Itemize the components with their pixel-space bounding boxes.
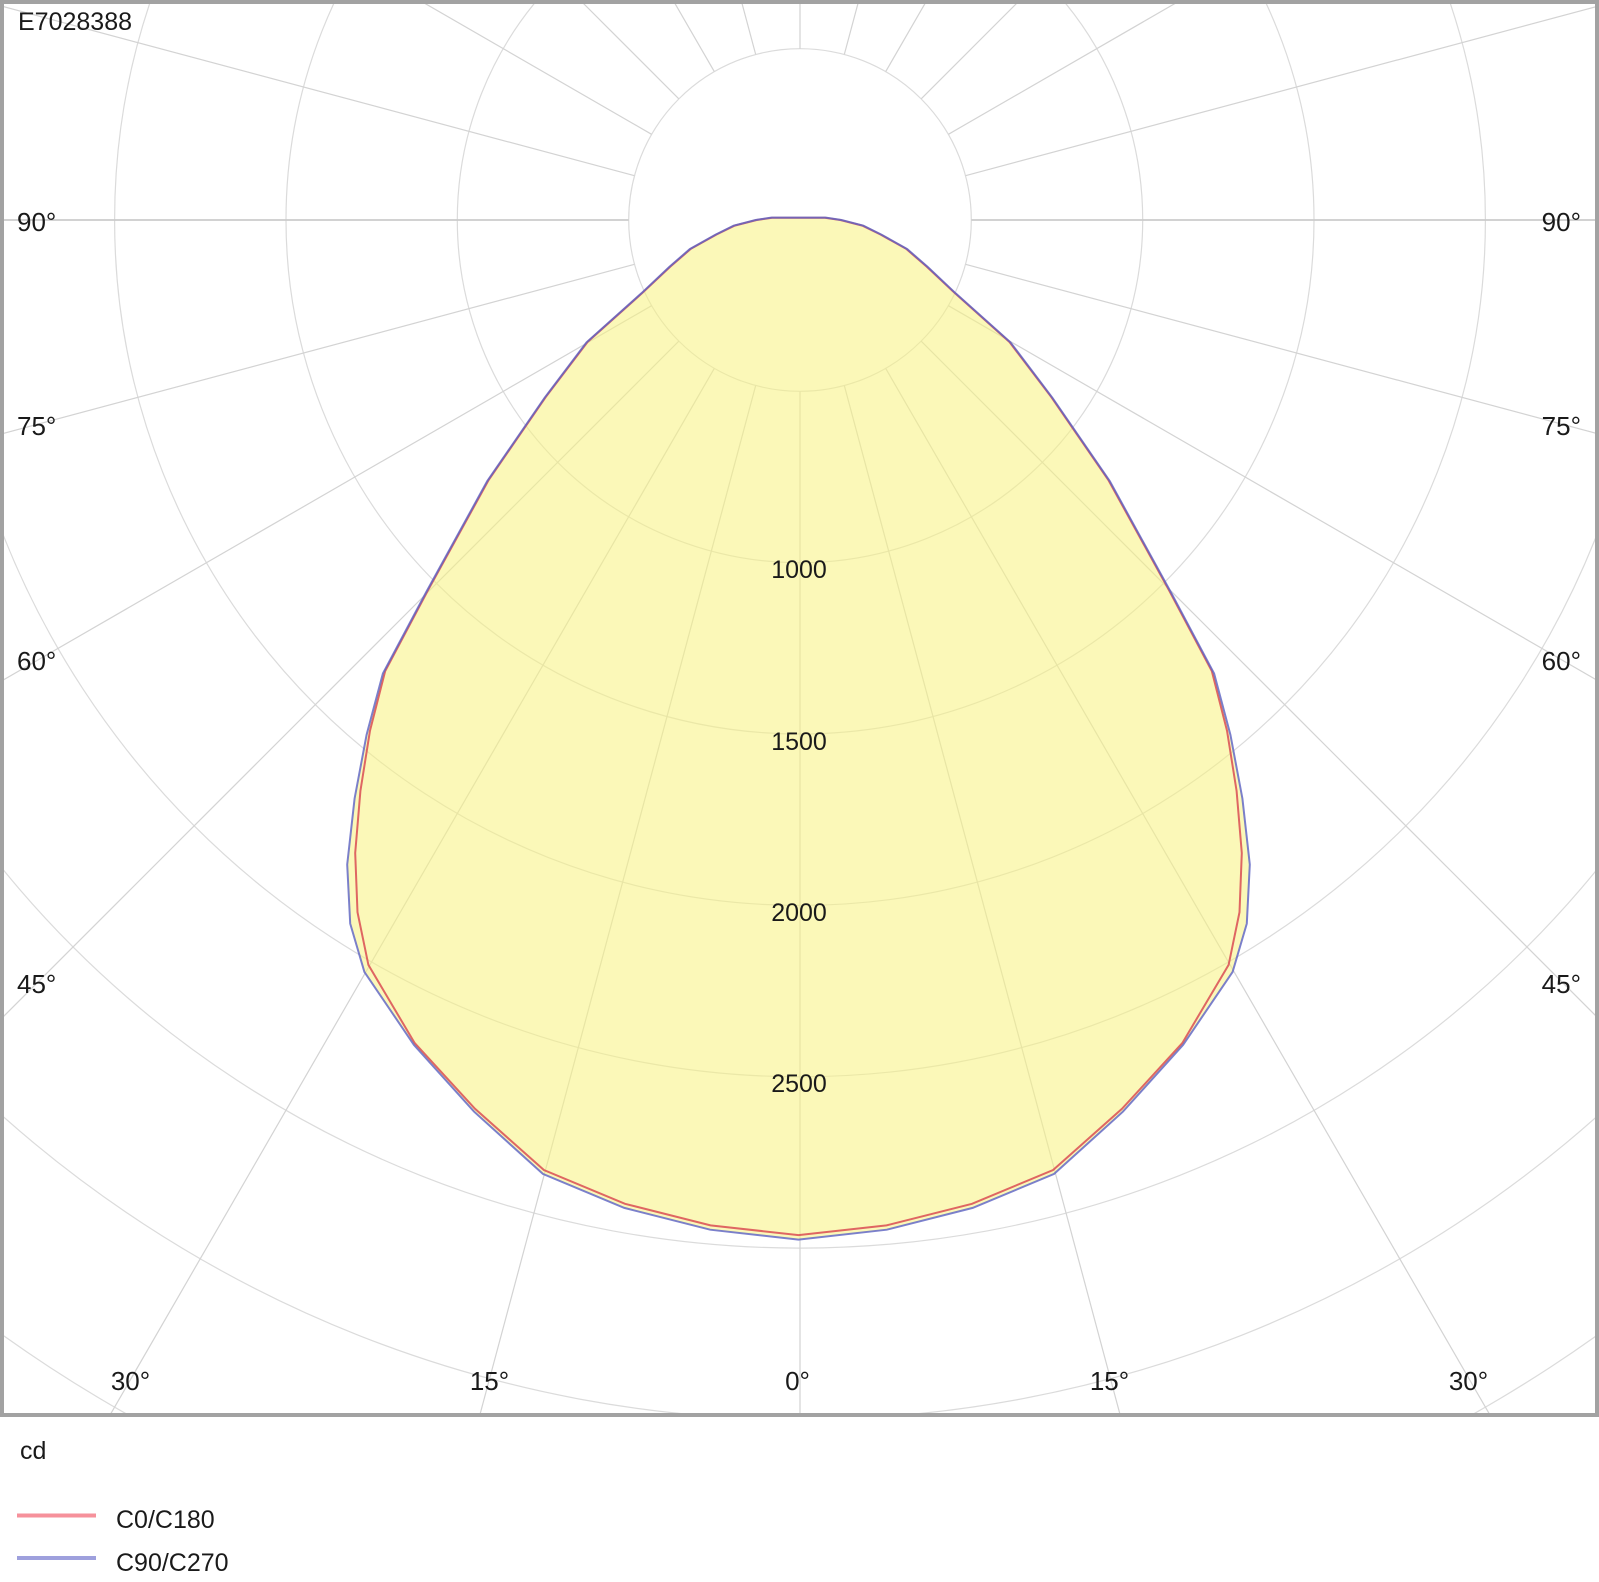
svg-text:75°: 75°	[1542, 411, 1581, 441]
svg-text:15°: 15°	[1090, 1366, 1129, 1396]
svg-text:C90/C270: C90/C270	[116, 1549, 229, 1577]
svg-text:30°: 30°	[111, 1366, 150, 1396]
svg-text:2000: 2000	[771, 899, 827, 927]
svg-text:cd: cd	[20, 1437, 46, 1465]
svg-text:90°: 90°	[17, 207, 56, 237]
svg-text:E7028388: E7028388	[18, 8, 132, 36]
svg-text:1000: 1000	[771, 556, 827, 584]
svg-text:15°: 15°	[470, 1366, 509, 1396]
svg-text:75°: 75°	[17, 411, 56, 441]
svg-text:60°: 60°	[17, 646, 56, 676]
svg-text:90°: 90°	[1542, 207, 1581, 237]
svg-text:45°: 45°	[17, 969, 56, 999]
svg-text:30°: 30°	[1449, 1366, 1488, 1396]
svg-text:2500: 2500	[771, 1070, 827, 1098]
svg-text:1500: 1500	[771, 728, 827, 756]
svg-text:0°: 0°	[785, 1366, 810, 1396]
svg-text:C0/C180: C0/C180	[116, 1506, 215, 1534]
svg-text:45°: 45°	[1542, 969, 1581, 999]
svg-text:60°: 60°	[1542, 646, 1581, 676]
